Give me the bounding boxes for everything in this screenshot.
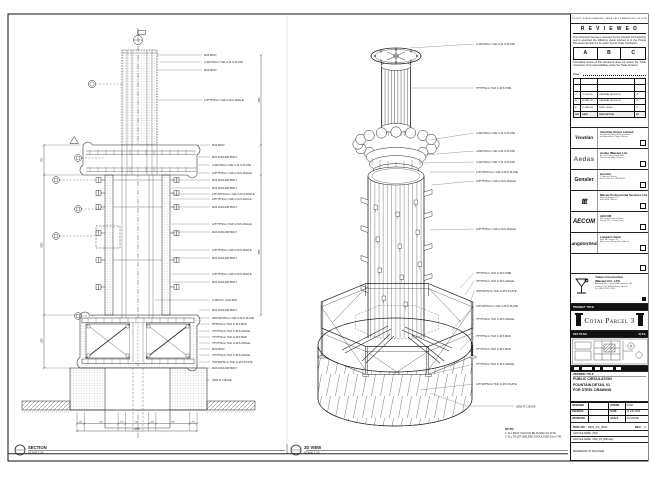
callout-label: 125*125*10mm THK G.M.S PLATE	[476, 170, 518, 174]
revision-cell: VL	[635, 98, 645, 105]
revision-cell: FIRST ISSUE	[598, 104, 635, 111]
project-title-label: PROJECT TITLE	[573, 306, 594, 309]
revision-cell: B	[574, 98, 581, 105]
consultant-row: Gensler Gensler 2 Harrison Street San Fr…	[571, 170, 648, 191]
revision-cell: A	[574, 104, 581, 111]
dwg-no-label: DWG NO :	[573, 425, 587, 429]
status-checkbox	[640, 265, 646, 271]
drawing-title-line: FOR STEEL DRAWING	[573, 388, 646, 394]
contractor-address: Tel: (853) 2870 3113	[595, 288, 646, 291]
callout-label: 125*75*9mm THK G.M.S ANGLE	[212, 222, 252, 226]
callout-label: 75*75*6mm THK G.M.S BAR	[476, 347, 511, 351]
callout-label: M20 ANCHOR BOLT	[212, 308, 237, 312]
status-checkbox	[640, 182, 646, 188]
approval-label: SCALE	[609, 415, 625, 422]
callout-label: 125*125*6mm THK G.M.S PLATE	[476, 382, 517, 386]
revision-cell: GENERAL REVISION	[598, 98, 635, 105]
status-checkbox	[640, 245, 646, 251]
drawing-sheet: M20 BOLT 4-340*20mm THK G.M.S PLATE M20 …	[0, 0, 650, 488]
callout-label: 4-350 R.C COLUMN	[212, 298, 237, 302]
approval-table: DESIGNED - DRAWN CHAN CHECKED - DATE 10 …	[571, 402, 648, 423]
ornament-icon	[638, 315, 643, 326]
callout-label: 4-340*20mm THK G.M.S PLATE	[476, 42, 515, 46]
revision-cell: 28 MAY 09	[581, 98, 598, 105]
callout-label: 125*125*10mm THK G.M.S PLATE	[476, 304, 518, 308]
revision-cell: VL	[635, 104, 645, 111]
consultant-row: LangdonSeah Langdon Seah Rua do Campo 78…	[571, 233, 648, 254]
reviewed-paragraph: This document has been reviewed by the r…	[573, 36, 646, 46]
callout-label: 75*75*6mm THK G.M.S PIPE	[476, 271, 512, 275]
status-checkbox	[640, 161, 646, 167]
revision-cell: 10 JUN 09	[581, 91, 598, 98]
approval-label: DATE	[609, 409, 625, 416]
rev-value: C	[644, 425, 646, 429]
revision-header: REV	[574, 111, 581, 118]
key-plan-map	[571, 338, 649, 366]
callout-label: M20 ANCHOR BOLT	[212, 178, 237, 182]
key-plan	[571, 338, 648, 366]
callout-label: M20 ANCHOR BOLT	[212, 155, 237, 159]
drawing-title-block: DRAWING TITLE: PUBLIC CIRCULATION FOUNTA…	[571, 372, 648, 402]
iso-view-scale: SCALE 1:25	[304, 450, 320, 454]
callout-label: M20 ANCHOR BOLT	[212, 366, 237, 370]
yadee-construction-logo	[573, 276, 593, 301]
reviewed-title: R E V I E W E D	[573, 25, 646, 34]
approval-value: AS SHOWN	[626, 415, 648, 422]
review-status-options: A B C	[573, 47, 646, 60]
ttt-logo: ttt	[571, 191, 598, 211]
drawing-number-row: DWG NO : 0502_PS_0000 REV : C	[571, 423, 648, 431]
approval-label: APPROVED	[571, 415, 589, 422]
callout-label: M20 ANCHOR BOLT	[212, 186, 237, 190]
section-title: SECTION	[28, 445, 47, 450]
revision-table: C 10 JUN 09 GENERAL REVISION VL B 28 MAY…	[573, 78, 646, 119]
callout-label: 50*50*6mm THK G.M.S BAR	[212, 322, 247, 326]
project-name: Cotai Parcel 3	[584, 316, 634, 325]
status-option-c: C	[621, 48, 645, 59]
status-checkbox	[640, 140, 646, 146]
callout-label: 75*75*6mm THK G.M.S ANGLE	[212, 353, 250, 357]
approval-value: CHAN	[626, 402, 648, 409]
project-name-row: Cotai Parcel 3	[571, 311, 648, 331]
approval-label: DRAWN	[609, 402, 625, 409]
drawing-canvas: M20 BOLT 4-340*20mm THK G.M.S PLATE M20 …	[0, 0, 650, 488]
callout-label: 75*75*6mm THK G.M.S ANGLE	[476, 362, 514, 366]
callout-label: 4-800*20mm THK G.M.S PLATE	[476, 149, 515, 153]
stamp-square	[642, 297, 646, 301]
langdon-seah-logo: LangdonSeah	[571, 233, 598, 253]
consultant-address: da Esperança, Taipa, Macau	[600, 136, 646, 138]
dimension-label: 3875	[259, 249, 261, 255]
callout-label: A350 R.C BASE	[516, 405, 536, 409]
approval-value: 10 JUN 2009	[626, 409, 648, 416]
key-plan-bar: KEY PLAN N.T.S.	[571, 331, 648, 338]
status-option-b: B	[598, 48, 622, 59]
note-line: 2. ALL FILLET WELDED SHOULD BE 6mm THK.	[505, 435, 562, 439]
section-scale: SCALE 1:25	[28, 450, 44, 454]
ornament-icon	[576, 315, 581, 326]
date-label: Date :	[573, 72, 581, 76]
callout-label: 125*125*10mm THK G.M.S ANGLE	[212, 192, 255, 196]
consultant-address: San Francisco, CA 94105	[600, 178, 646, 180]
status-checkbox	[640, 224, 646, 230]
revision-header: DESCRIPTION	[598, 111, 635, 118]
title-block: DO NOT SCALE DRAWING. VERIFY ALL DIMENSI…	[570, 14, 648, 461]
revision-cell: GENERAL REVISION	[598, 91, 635, 98]
reference-row: REFERENCE ON FILE NAME	[571, 443, 648, 461]
reviewed-stamp: R E V I E W E D This document has been r…	[571, 24, 648, 128]
approval-value: -	[589, 402, 609, 409]
dimension-label: 2250	[259, 97, 261, 103]
consultant-row: Aedas Aedas (Macau) Ltd. Av. da Praia Gr…	[571, 149, 648, 170]
callout-label: 125*75*9mm THK G.M.S ANGLE	[212, 272, 252, 276]
empty-consultant-row	[571, 254, 648, 274]
approval-value: -	[589, 415, 609, 422]
key-plan-label: KEY PLAN	[573, 333, 587, 336]
dwg-no-value: 0502_PS_0000	[588, 425, 607, 429]
dimension-label: 3500	[42, 242, 44, 248]
callout-label: 75*75*6mm THK G.M.S ANGLE	[212, 329, 250, 333]
callout-label: M20 BOLT	[212, 347, 225, 351]
revision-header: BY	[635, 111, 645, 118]
callout-label: 700*200*6mm THK G.M.S PLATE	[212, 360, 253, 364]
callout-label: 125*75*9mm THK G.M.S ANGLE	[476, 227, 516, 231]
consultant-row: Venetian Venetian Orient Limited Estrada…	[571, 128, 648, 149]
dimension-label: 1325	[42, 338, 44, 344]
consultant-address: China Law Bldg, Macau	[600, 157, 646, 159]
aecom-logo: AECOM	[571, 212, 598, 232]
rev-label: REV :	[635, 425, 642, 429]
callout-label: 75*75*6mm THK G.M.S BAR	[212, 335, 247, 339]
note-line: 1. ALL BOLT SHOULD BE FIXING ON SITE.	[505, 431, 557, 435]
callout-label: 75*75*6mm THK G.M.S PIPE	[476, 86, 512, 90]
callout-label: 75*75*6mm THK G.M.S ANGLE	[212, 341, 250, 345]
revision-cell: 15 MAY 09	[581, 104, 598, 111]
reviewed-paragraph: Consultant review of this document does …	[573, 61, 646, 67]
status-checkbox	[640, 203, 646, 209]
callout-label: M20 ANCHOR BOLT	[212, 205, 237, 209]
callout-label: A350 R.C BASE	[212, 378, 232, 382]
callout-label: M20 ANCHOR BOLT	[212, 230, 237, 234]
callout-label: 125*75*9mm THK G.M.S ANGLE	[212, 197, 252, 201]
callout-label: 4-340*20mm THK G.M.S PLATE	[476, 131, 515, 135]
approval-label: CHECKED	[571, 409, 589, 416]
callout-label: 125*75*9mm THK G.M.S ANGLE	[476, 179, 516, 183]
callout-label: 125*75*9mm THK G.M.S ANGLE	[212, 171, 252, 175]
callout-label: 125*75*9mm THK G.M.S ANGLE	[204, 98, 244, 102]
dimension-total-label: 3338	[134, 429, 140, 431]
callout-label: 75*75*6mm THK G.M.S ANGLE	[476, 279, 514, 283]
revision-cell: VL	[635, 91, 645, 98]
review-date-row: Date :	[573, 69, 646, 76]
gensler-logo: Gensler	[571, 170, 598, 190]
callout-label: 75*75*6mm THK G.M.S ANGLE	[476, 317, 514, 321]
callout-label: 4-340*20mm THK G.M.S PLATE	[204, 60, 243, 64]
callout-label: M20 BOLT	[204, 53, 217, 57]
callout-label: 125*75*9mm THK G.M.S ANGLE	[212, 248, 252, 252]
approval-value: -	[589, 409, 609, 416]
callout-label: M20 ANCHOR BOLT	[212, 256, 237, 260]
contractor-block: Yadee Construction (Macau) CO., LTD. Ala…	[571, 274, 648, 304]
revision-header: DATE	[581, 111, 598, 118]
callout-label: 4-340*20mm THK G.M.S PLATE	[476, 160, 515, 164]
consultant-row: AECOM AECOM 8/F Grand Central Plaza Shat…	[571, 212, 648, 233]
key-plan-scale: N.T.S.	[639, 333, 646, 336]
note-heading: NOTE:	[505, 427, 514, 431]
callout-label: M20 ANCHOR BOLT	[212, 280, 237, 284]
project-title-bar: PROJECT TITLE	[571, 304, 648, 311]
callout-label: 75*75*6mm THK G.M.S BAR	[476, 334, 511, 338]
margin-note: DO NOT SCALE DRAWING. VERIFY ALL DIMENSI…	[571, 14, 648, 24]
callout-label: M20 BOLT	[204, 68, 217, 72]
callout-label: M20 BOLT	[212, 143, 225, 147]
consultant-address: Edf. ACM, Macau	[600, 199, 646, 201]
consultant-row: ttt Macau Professional Services Ltd. Rua…	[571, 191, 648, 212]
revision-cell: C	[574, 91, 581, 98]
venetian-orient-logo: Venetian	[571, 128, 598, 148]
approval-label: DESIGNED	[571, 402, 589, 409]
callout-label: 4-340*20mm THK G.M.S PLATE	[212, 163, 251, 167]
aedas-logo: Aedas	[571, 149, 598, 169]
consultant-address: Shatin, N.T., Hong Kong	[600, 220, 646, 222]
consultant-address: Edf. Com. Zhang Kian, Macau	[600, 241, 646, 243]
status-option-a: A	[574, 48, 598, 59]
callout-label: 450*200*20mm THK G.M.S PLATE	[212, 316, 254, 320]
callout-label: 450*200*6mm THK G.M.S PLATE	[476, 289, 517, 293]
iso-view-title: 3D VIEW	[304, 445, 321, 450]
